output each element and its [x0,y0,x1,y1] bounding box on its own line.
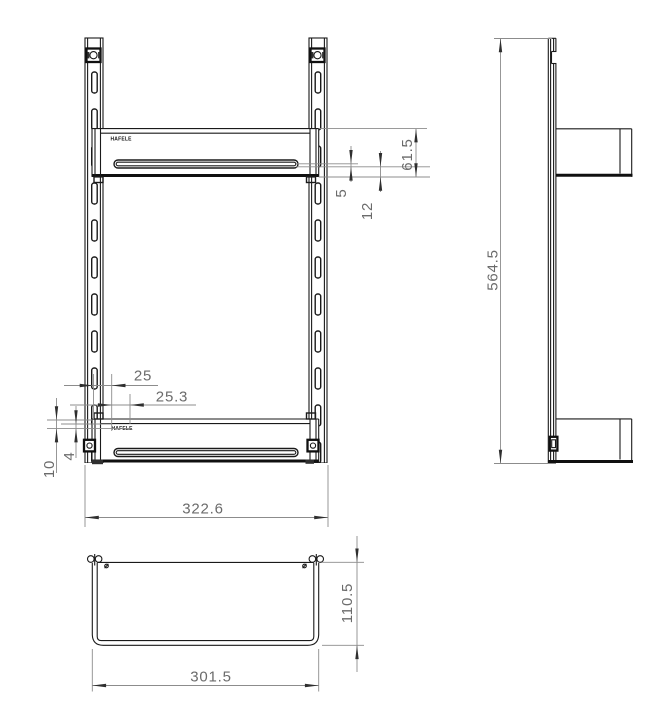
bottom-shelf-hook-tabs [94,413,316,419]
left-rail [85,38,103,463]
dim-label-12: 12 [359,202,376,220]
dim-label-564-5: 564.5 [485,249,502,291]
right-rail-mount-box [311,49,325,63]
top-shelf: HAFELE [92,129,319,183]
dim-group-tray-width: 301.5 [92,649,318,692]
dim-group-overall-height: 564.5 [485,39,557,464]
tray-inner-wall [97,563,314,641]
bottom-shelf: HAFELE [92,413,319,464]
dim-group-overall-width: 322.6 [85,465,328,527]
right-rail [309,38,327,463]
left-rail-clip [84,440,95,452]
side-rail-notch [551,52,557,64]
hafele-rack-technical-drawing: HAFELE HAFELE [0,0,662,708]
tray-outer-wall [92,563,318,645]
right-rail-clip [308,440,319,452]
dim-label-10: 10 [41,460,58,478]
dim-label-4: 4 [61,451,78,460]
dim-label-5: 5 [333,188,350,197]
dim-label-25: 25 [134,368,152,385]
side-view: 564.5 [485,38,634,463]
dim-label-301-5: 301.5 [190,669,232,686]
top-shelf-hook-tabs [94,177,316,183]
left-rail-mount-box [87,49,101,63]
front-view: HAFELE HAFELE [41,38,430,527]
side-bottom-shelf-profile [548,419,633,462]
brand-logo-top-shelf: HAFELE [111,137,133,143]
tray-right-hook [303,554,324,568]
tray-left-hook [88,554,109,568]
dim-label-61-5: 61.5 [399,138,416,170]
tray-top-view: 110.5 301.5 [88,536,365,692]
dim-label-25-3: 25.3 [156,389,188,406]
side-rail-clip [550,437,558,451]
dim-group-tray-depth: 110.5 [322,536,364,672]
technical-drawing-page: HAFELE HAFELE [0,0,662,708]
side-top-shelf-profile [556,129,633,177]
side-rail [548,38,557,463]
dim-label-322-6: 322.6 [182,501,224,518]
dim-label-110-5: 110.5 [339,583,356,623]
